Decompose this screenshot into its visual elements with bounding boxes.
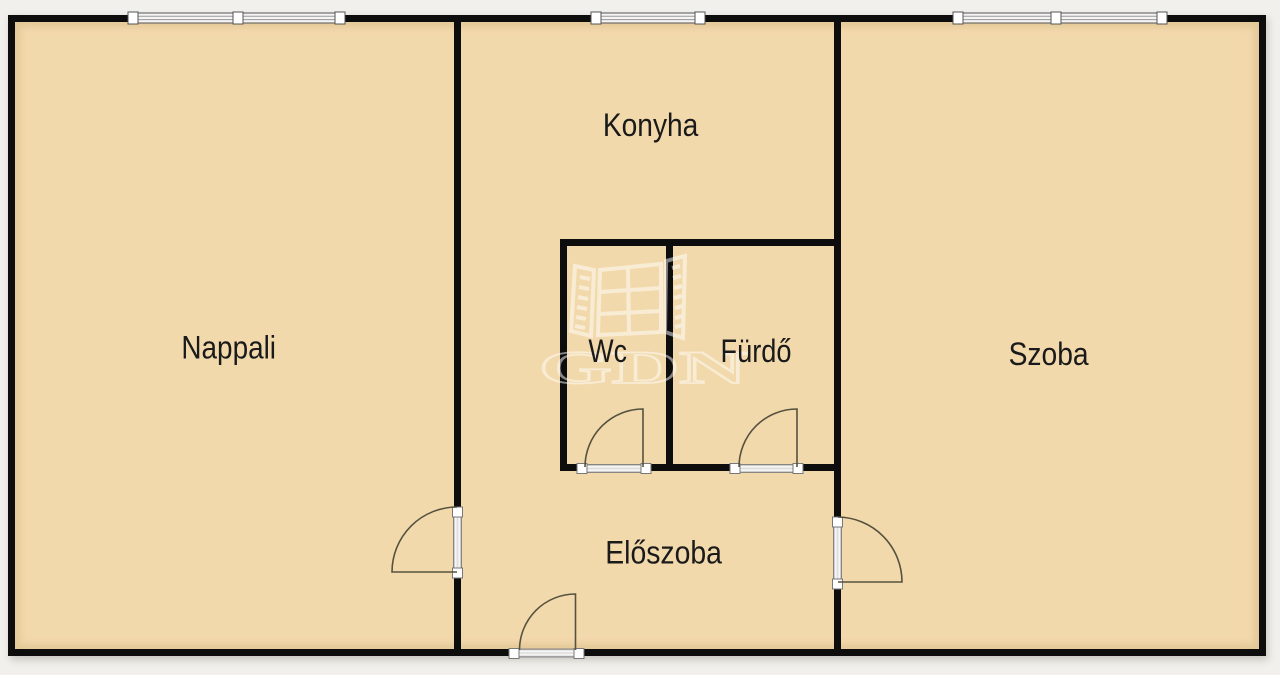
svg-text:Fürdő: Fürdő — [721, 333, 792, 369]
svg-text:GDN: GDN — [539, 342, 747, 394]
svg-text:Szoba: Szoba — [1009, 336, 1089, 372]
svg-text:Konyha: Konyha — [603, 107, 699, 143]
svg-text:Előszoba: Előszoba — [605, 535, 722, 571]
svg-text:Wc: Wc — [588, 333, 627, 369]
svg-text:Nappali: Nappali — [181, 329, 276, 365]
